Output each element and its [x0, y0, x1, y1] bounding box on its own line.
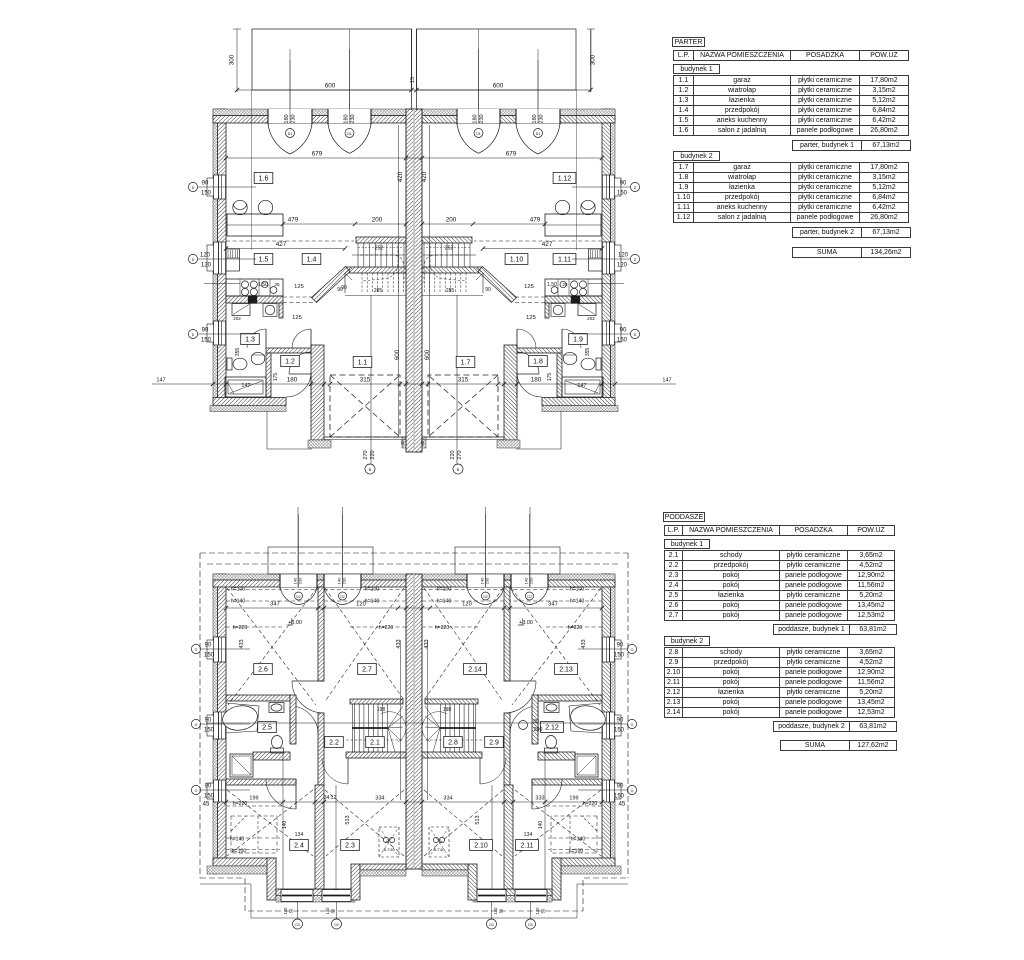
svg-text:1,50: 1,50 — [547, 282, 557, 288]
svg-text:90: 90 — [202, 181, 209, 187]
svg-text:200: 200 — [372, 217, 383, 224]
svg-text:45: 45 — [203, 802, 210, 808]
svg-text:679: 679 — [506, 151, 517, 158]
svg-text:1,50: 1,50 — [258, 282, 268, 288]
svg-text:90: 90 — [617, 784, 624, 790]
svg-text:230: 230 — [485, 577, 490, 584]
svg-text:1.11: 1.11 — [558, 257, 571, 264]
svg-text:50: 50 — [289, 908, 294, 913]
svg-text:90: 90 — [620, 328, 627, 334]
svg-text:2.12: 2.12 — [545, 725, 559, 732]
svg-text:D: D — [192, 333, 195, 337]
svg-text:679: 679 — [312, 151, 323, 158]
svg-text:2.9: 2.9 — [489, 740, 499, 747]
svg-text:433: 433 — [581, 639, 587, 648]
svg-text:140: 140 — [538, 821, 544, 830]
svg-text:45: 45 — [619, 802, 626, 808]
svg-text:B-T40: B-T40 — [384, 847, 396, 852]
svg-text:333: 333 — [535, 796, 544, 802]
svg-text:147: 147 — [577, 383, 586, 389]
svg-text:h=140: h=140 — [571, 837, 586, 843]
svg-text:h=220: h=220 — [583, 801, 598, 807]
svg-text:180: 180 — [284, 114, 290, 123]
svg-text:1.7: 1.7 — [461, 360, 471, 367]
svg-text:2.4: 2.4 — [294, 843, 304, 850]
svg-text:50: 50 — [499, 908, 504, 913]
svg-text:h=140: h=140 — [437, 599, 452, 605]
svg-text:600: 600 — [325, 83, 336, 90]
svg-text:h=140: h=140 — [230, 837, 245, 843]
svg-text:2.11: 2.11 — [520, 843, 533, 850]
svg-text:202: 202 — [587, 316, 595, 321]
svg-text:420: 420 — [397, 171, 404, 182]
svg-text:300: 300 — [229, 54, 236, 65]
svg-text:1.3: 1.3 — [245, 337, 255, 344]
svg-text:1.6: 1.6 — [259, 176, 269, 183]
svg-text:120: 120 — [617, 263, 628, 269]
svg-text:230: 230 — [350, 114, 356, 123]
svg-text:230: 230 — [479, 114, 485, 123]
svg-text:B-T40: B-T40 — [434, 847, 446, 852]
svg-text:D2: D2 — [340, 595, 344, 599]
svg-text:2.1: 2.1 — [370, 740, 380, 747]
svg-text:h=100: h=100 — [231, 587, 246, 593]
svg-text:D1: D1 — [347, 132, 352, 136]
svg-text:25: 25 — [562, 282, 568, 287]
svg-text:h=220: h=220 — [233, 625, 248, 631]
svg-text:50: 50 — [331, 908, 336, 913]
svg-text:140: 140 — [535, 907, 540, 915]
svg-text:50: 50 — [541, 908, 546, 913]
svg-text:230: 230 — [538, 114, 544, 123]
svg-text:25: 25 — [274, 282, 280, 287]
svg-text:420: 420 — [421, 171, 428, 182]
svg-text:D3: D3 — [295, 923, 299, 927]
svg-text:355: 355 — [585, 348, 591, 357]
svg-text:200: 200 — [446, 217, 457, 224]
svg-text:202: 202 — [233, 316, 241, 321]
svg-text:h=140: h=140 — [365, 599, 380, 605]
svg-text:h=220: h=220 — [379, 625, 394, 631]
svg-text:120: 120 — [462, 602, 472, 608]
svg-text:O: O — [195, 723, 198, 727]
svg-text:150: 150 — [204, 794, 215, 800]
svg-text:1.10: 1.10 — [510, 257, 524, 264]
svg-text:B: B — [369, 467, 372, 472]
svg-text:45: 45 — [400, 440, 405, 446]
svg-text:600: 600 — [424, 349, 431, 360]
svg-text:2.3: 2.3 — [345, 843, 355, 850]
svg-text:199: 199 — [249, 796, 258, 802]
svg-text:150: 150 — [614, 794, 625, 800]
svg-text:220: 220 — [450, 450, 456, 459]
svg-text:80: 80 — [533, 719, 539, 725]
svg-text:140: 140 — [282, 821, 288, 830]
svg-text:2.7: 2.7 — [362, 667, 372, 674]
svg-text:285: 285 — [446, 288, 455, 294]
svg-text:285: 285 — [374, 288, 383, 294]
svg-text:347: 347 — [548, 602, 558, 608]
svg-text:150: 150 — [617, 191, 628, 197]
svg-text:D1: D1 — [536, 132, 541, 136]
svg-text:1.12: 1.12 — [558, 176, 572, 183]
svg-text:h=220: h=220 — [435, 625, 450, 631]
svg-text:199: 199 — [569, 796, 578, 802]
svg-text:433: 433 — [424, 639, 430, 648]
svg-text:15: 15 — [410, 77, 416, 83]
svg-text:2.8: 2.8 — [448, 740, 458, 747]
svg-text:513: 513 — [345, 815, 351, 824]
svg-text:1.9: 1.9 — [573, 337, 583, 344]
svg-text:252: 252 — [445, 246, 454, 252]
svg-text:90: 90 — [341, 285, 347, 291]
svg-text:h=220: h=220 — [233, 801, 248, 807]
svg-text:600: 600 — [493, 83, 504, 90]
svg-text:h=100: h=100 — [570, 587, 585, 593]
svg-text:2.5: 2.5 — [262, 725, 272, 732]
svg-text:2.2: 2.2 — [329, 740, 339, 747]
svg-text:45: 45 — [420, 440, 425, 446]
svg-text:h=140: h=140 — [570, 599, 585, 605]
svg-text:D: D — [634, 186, 637, 190]
svg-text:150: 150 — [204, 728, 215, 734]
svg-text:1.4: 1.4 — [307, 257, 317, 264]
svg-text:1.2: 1.2 — [285, 359, 295, 366]
svg-text:334: 334 — [443, 796, 452, 802]
svg-text:433: 433 — [239, 639, 245, 648]
svg-text:O: O — [195, 648, 198, 652]
svg-text:90: 90 — [485, 287, 491, 293]
svg-text:D: D — [634, 258, 637, 262]
svg-text:427: 427 — [276, 241, 287, 248]
svg-text:D: D — [192, 258, 195, 262]
svg-text:175: 175 — [547, 373, 553, 382]
svg-text:200: 200 — [534, 727, 543, 733]
svg-text:334: 334 — [375, 796, 384, 802]
svg-text:479: 479 — [288, 217, 299, 224]
svg-text:125: 125 — [292, 315, 302, 321]
svg-text:180: 180 — [287, 377, 298, 384]
svg-text:1.1: 1.1 — [358, 360, 368, 367]
svg-text:427: 427 — [542, 241, 553, 248]
svg-text:120: 120 — [618, 253, 629, 259]
svg-text:230: 230 — [290, 114, 296, 123]
svg-text:90: 90 — [205, 784, 212, 790]
svg-text:B: B — [457, 467, 460, 472]
svg-text:134: 134 — [524, 832, 533, 838]
svg-text:D3: D3 — [489, 923, 493, 927]
svg-text:125: 125 — [524, 284, 534, 290]
svg-text:D2: D2 — [483, 595, 487, 599]
svg-text:h=100: h=100 — [232, 849, 247, 855]
svg-text:140: 140 — [493, 907, 498, 915]
svg-text:180: 180 — [343, 114, 349, 123]
svg-text:150: 150 — [617, 338, 628, 344]
svg-text:90: 90 — [617, 718, 624, 724]
svg-text:h=140: h=140 — [231, 599, 246, 605]
svg-text:150: 150 — [201, 191, 212, 197]
svg-text:600: 600 — [394, 349, 401, 360]
svg-text:2.13: 2.13 — [559, 667, 573, 674]
svg-text:230: 230 — [342, 577, 347, 584]
svg-text:230: 230 — [298, 577, 303, 584]
svg-text:252: 252 — [375, 246, 384, 252]
svg-text:479: 479 — [530, 217, 541, 224]
svg-text:D3: D3 — [528, 923, 532, 927]
svg-text:D: D — [634, 333, 637, 337]
svg-text:355: 355 — [235, 348, 241, 357]
svg-text:134: 134 — [295, 832, 304, 838]
svg-text:315: 315 — [458, 377, 469, 384]
svg-text:90: 90 — [205, 718, 212, 724]
svg-text:315: 315 — [360, 377, 371, 384]
svg-text:147: 147 — [662, 378, 671, 384]
svg-text:D1: D1 — [476, 132, 481, 136]
svg-text:h=220: h=220 — [568, 625, 583, 631]
svg-text:147: 147 — [156, 378, 165, 384]
svg-text:120: 120 — [200, 253, 211, 259]
svg-text:125: 125 — [294, 284, 304, 290]
svg-text:180: 180 — [531, 377, 542, 384]
svg-text:125: 125 — [526, 315, 536, 321]
svg-text:90: 90 — [205, 643, 212, 649]
svg-text:2.10: 2.10 — [474, 843, 488, 850]
svg-text:34 12: 34 12 — [324, 795, 337, 801]
svg-text:D: D — [192, 186, 195, 190]
svg-text:150: 150 — [204, 653, 215, 659]
svg-text:1.8: 1.8 — [533, 359, 543, 366]
svg-text:150: 150 — [614, 728, 625, 734]
svg-text:O: O — [631, 789, 634, 793]
svg-text:150: 150 — [614, 653, 625, 659]
svg-text:O: O — [631, 723, 634, 727]
svg-text:198: 198 — [377, 707, 386, 713]
svg-text:120: 120 — [356, 602, 366, 608]
svg-text:347: 347 — [270, 602, 280, 608]
svg-text:140: 140 — [283, 907, 288, 915]
svg-text:513: 513 — [475, 815, 481, 824]
svg-text:O: O — [631, 648, 634, 652]
svg-text:270: 270 — [457, 450, 463, 459]
svg-text:175: 175 — [273, 373, 279, 382]
svg-text:D1: D1 — [288, 132, 293, 136]
svg-text:h=100: h=100 — [437, 587, 452, 593]
svg-text:270: 270 — [363, 450, 369, 459]
svg-text:140: 140 — [325, 907, 330, 915]
svg-text:90: 90 — [617, 643, 624, 649]
svg-text:D2: D2 — [296, 595, 300, 599]
svg-text:150: 150 — [201, 338, 212, 344]
svg-text:O: O — [195, 789, 198, 793]
svg-text:147: 147 — [241, 383, 250, 389]
svg-text:220: 220 — [370, 450, 376, 459]
svg-text:120: 120 — [201, 263, 212, 269]
svg-text:2.6: 2.6 — [258, 667, 268, 674]
svg-text:198: 198 — [443, 707, 452, 713]
svg-text:90: 90 — [202, 328, 209, 334]
svg-text:D3: D3 — [334, 923, 338, 927]
svg-text:D2: D2 — [527, 595, 531, 599]
svg-text:1.5: 1.5 — [259, 257, 269, 264]
svg-text:h=100: h=100 — [569, 849, 584, 855]
svg-text:230: 230 — [529, 577, 534, 584]
svg-text:2.14: 2.14 — [468, 667, 482, 674]
svg-text:180: 180 — [532, 114, 538, 123]
svg-text:433: 433 — [396, 639, 402, 648]
svg-text:h=100: h=100 — [365, 587, 380, 593]
svg-text:180: 180 — [472, 114, 478, 123]
svg-text:90: 90 — [620, 181, 627, 187]
